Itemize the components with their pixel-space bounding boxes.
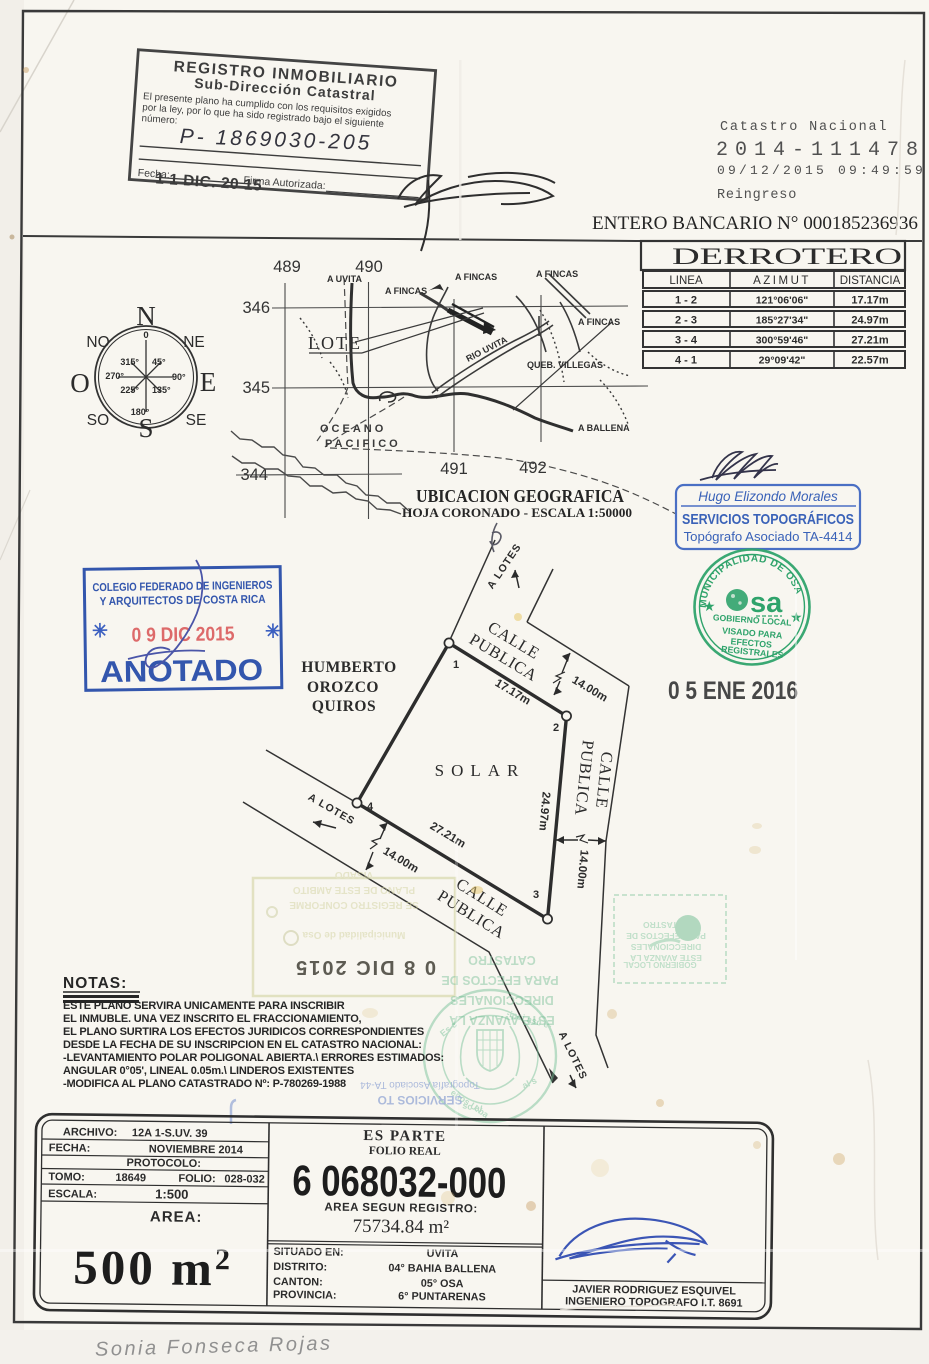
svg-text:489: 489: [273, 258, 301, 276]
svg-text:SE: SE: [186, 412, 207, 429]
svg-text:✳: ✳: [92, 621, 108, 642]
svg-text:1:500: 1:500: [155, 1186, 188, 1201]
svg-text:DISTANCIA: DISTANCIA: [840, 275, 901, 287]
svg-text:ESCALA:: ESCALA:: [48, 1188, 97, 1201]
svg-text:PROTOCOLO:: PROTOCOLO:: [127, 1157, 202, 1170]
svg-text:AREA SEGUN REGISTRO:: AREA SEGUN REGISTRO:: [324, 1201, 477, 1215]
svg-text:OCEANO: OCEANO: [320, 423, 386, 435]
svg-text:18649: 18649: [115, 1172, 146, 1184]
svg-text:SERVICIOS TO: SERVICIOS TO: [378, 1093, 463, 1107]
svg-text:028-032: 028-032: [224, 1173, 265, 1185]
svg-text:Reingreso: Reingreso: [717, 188, 797, 203]
svg-text:A FINCAS: A FINCAS: [385, 286, 427, 296]
svg-text:O: O: [70, 368, 90, 398]
svg-text:ENTERO BANCARIO N° 00018523693: ENTERO BANCARIO N° 000185236936: [592, 214, 918, 234]
svg-text:EL PLANO SURTIRA LOS EFECTOS J: EL PLANO SURTIRA LOS EFECTOS JURIDICOS C…: [63, 1026, 424, 1038]
svg-text:LINEA: LINEA: [669, 275, 703, 287]
svg-text:SERVICIOS TOPOGRÁFICOS: SERVICIOS TOPOGRÁFICOS: [682, 511, 854, 528]
svg-text:DISTRITO:: DISTRITO:: [273, 1261, 327, 1274]
svg-text:05° OSA: 05° OSA: [421, 1278, 464, 1291]
svg-text:OROZCO: OROZCO: [307, 679, 379, 696]
svg-text:ESTE PLANO SERVIRA UNICAMENTE: ESTE PLANO SERVIRA UNICAMENTE PARA INSCR…: [63, 1000, 345, 1012]
svg-text:A FINCAS: A FINCAS: [578, 317, 620, 327]
svg-text:0 8 DIC 2015: 0 8 DIC 2015: [294, 956, 436, 978]
svg-text:0 5 ENE 2016: 0 5 ENE 2016: [668, 677, 798, 705]
svg-text:4: 4: [367, 801, 374, 813]
svg-text:NO: NO: [86, 334, 109, 351]
svg-text:FOLIO:: FOLIO:: [178, 1173, 215, 1185]
svg-text:75734.84 m²: 75734.84 m²: [352, 1216, 449, 1238]
svg-text:AZIMUT: AZIMUT: [753, 275, 811, 287]
svg-text:HUMBERTO: HUMBERTO: [301, 659, 396, 676]
svg-text:PARA EFECTOS DE: PARA EFECTOS DE: [441, 973, 558, 987]
svg-text:ANGULAR 0°05', LINEAL 0.05m.\: ANGULAR 0°05', LINEAL 0.05m.\ LINDEROS E…: [63, 1065, 354, 1077]
svg-text:-LEVANTAMIENTO POLAR POLIGONAL: -LEVANTAMIENTO POLAR POLIGONAL ABIERTA.\…: [63, 1052, 444, 1064]
svg-text:1 - 2: 1 - 2: [675, 295, 697, 307]
svg-text:3: 3: [533, 889, 539, 901]
svg-text:17.17m: 17.17m: [851, 295, 889, 307]
svg-text:QUEB. VILLEGAS: QUEB. VILLEGAS: [527, 360, 603, 370]
svg-text:NE: NE: [183, 334, 205, 351]
svg-text:6° PUNTARENAS: 6° PUNTARENAS: [398, 1290, 486, 1303]
svg-text:E: E: [200, 367, 217, 397]
svg-text:24.97m: 24.97m: [851, 315, 889, 327]
svg-text:EL INMUBLE. UNA VEZ INSCRITO E: EL INMUBLE. UNA VEZ INSCRITO EL FRACCION…: [63, 1013, 362, 1025]
svg-text:A BALLENA: A BALLENA: [578, 423, 630, 433]
svg-text:Municipalidad de Osa: Municipalidad de Osa: [302, 929, 405, 940]
svg-text:SO: SO: [87, 412, 109, 429]
svg-text:491: 491: [440, 460, 468, 478]
svg-text:SOLAR: SOLAR: [435, 761, 526, 780]
svg-text:346: 346: [242, 299, 270, 317]
svg-text:Topógrafo Asociado TA-4414: Topógrafo Asociado TA-4414: [684, 529, 853, 544]
svg-text:N: N: [136, 301, 156, 331]
svg-text:FOLIO REAL: FOLIO REAL: [369, 1145, 441, 1158]
svg-text:A FINCAS: A FINCAS: [536, 269, 578, 279]
svg-text:Topografía Asociado TA-44: Topografía Asociado TA-44: [360, 1079, 480, 1090]
svg-text:NOVIEMBRE 2014: NOVIEMBRE 2014: [149, 1143, 244, 1156]
svg-text:315°: 315°: [120, 357, 139, 367]
svg-text:Hugo Elizondo Morales: Hugo Elizondo Morales: [698, 489, 838, 504]
svg-text:6 068032-000: 6 068032-000: [292, 1157, 507, 1208]
svg-text:135°: 135°: [152, 385, 171, 395]
svg-text:492: 492: [519, 459, 547, 477]
svg-text:PROVINCIA:: PROVINCIA:: [273, 1289, 337, 1302]
svg-text:4 - 1: 4 - 1: [675, 355, 697, 367]
svg-text:-MODIFICA AL PLANO CATASTRADO: -MODIFICA AL PLANO CATASTRADO Nº: P-7802…: [63, 1078, 346, 1090]
svg-text:CATASTRO: CATASTRO: [468, 953, 536, 967]
svg-text:27.21m: 27.21m: [851, 335, 889, 347]
svg-text:AREA:: AREA:: [150, 1208, 203, 1226]
svg-text:45°: 45°: [152, 357, 166, 367]
svg-text:DERROTERO: DERROTERO: [672, 244, 902, 269]
svg-text:345: 345: [242, 379, 270, 397]
svg-text:DESDE LA FECHA DE SU INSCRIPCI: DESDE LA FECHA DE SU INSCRIPCION EN EL C…: [63, 1039, 422, 1051]
svg-text:29°09'42": 29°09'42": [759, 355, 806, 367]
svg-text:GOBIERNO LOCAL: GOBIERNO LOCAL: [623, 960, 696, 969]
svg-text:2 - 3: 2 - 3: [675, 315, 697, 327]
svg-text:S: S: [138, 413, 153, 443]
svg-text:500 m2: 500 m2: [73, 1239, 233, 1296]
svg-text:CANTON:: CANTON:: [273, 1276, 323, 1289]
svg-text:270°: 270°: [105, 371, 124, 381]
svg-text:1: 1: [453, 659, 459, 671]
svg-text:Catastro Nacional: Catastro Nacional: [720, 120, 888, 135]
svg-text:90°: 90°: [172, 372, 186, 382]
svg-text:A FINCAS: A FINCAS: [455, 272, 497, 282]
svg-text:NOTAS:: NOTAS:: [63, 975, 127, 992]
svg-text:300°59'46": 300°59'46": [756, 335, 809, 347]
svg-text:225°: 225°: [120, 385, 139, 395]
svg-text:ANOTADO: ANOTADO: [100, 654, 263, 689]
svg-text:22.57m: 22.57m: [851, 355, 889, 367]
svg-text:0 9 DIC 2015: 0 9 DIC 2015: [131, 623, 234, 646]
svg-text:VISADO: VISADO: [335, 869, 374, 880]
svg-text:121°06'06": 121°06'06": [756, 295, 809, 307]
svg-text:UBICACION GEOGRAFICA: UBICACION GEOGRAFICA: [416, 486, 624, 506]
svg-text:LOTE: LOTE: [308, 333, 362, 353]
svg-text:3 - 4: 3 - 4: [675, 335, 698, 347]
svg-text:HOJA CORONADO - ESCALA 1:50000: HOJA CORONADO - ESCALA 1:50000: [402, 505, 632, 520]
svg-text:185°27'34": 185°27'34": [756, 315, 809, 327]
svg-text:FECHA:: FECHA:: [49, 1142, 91, 1155]
svg-text:SE REGISTRO CONFORME: SE REGISTRO CONFORME: [289, 899, 419, 910]
svg-text:sa: sa: [750, 587, 783, 619]
svg-text:Y ARQUITECTOS DE COSTA RICA: Y ARQUITECTOS DE COSTA RICA: [100, 594, 266, 608]
svg-text:ES PARTE: ES PARTE: [363, 1128, 446, 1145]
svg-text:12A 1-S.UV. 39: 12A 1-S.UV. 39: [132, 1127, 208, 1140]
svg-text:PACIFICO: PACIFICO: [325, 438, 401, 450]
svg-text:SITUADO EN:: SITUADO EN:: [273, 1246, 343, 1259]
svg-text:2014-111478: 2014-111478: [716, 139, 925, 162]
svg-text:COLEGIO FEDERADO DE INGENIEROS: COLEGIO FEDERADO DE INGENIEROS: [92, 580, 272, 595]
svg-text:QUIROS: QUIROS: [312, 698, 376, 715]
svg-text:ARCHIVO:: ARCHIVO:: [63, 1126, 118, 1139]
svg-text:04° BAHIA BALLENA: 04° BAHIA BALLENA: [388, 1262, 496, 1275]
svg-text:PLANO DE ESTE AMBITO: PLANO DE ESTE AMBITO: [293, 884, 415, 895]
svg-text:✳: ✳: [265, 622, 281, 643]
svg-text:A UVITA: A UVITA: [327, 274, 362, 284]
svg-text:2: 2: [553, 722, 559, 734]
svg-text:09/12/2015 09:49:59: 09/12/2015 09:49:59: [717, 163, 926, 178]
svg-text:DIRECCIONALES: DIRECCIONALES: [630, 942, 701, 952]
svg-text:0: 0: [143, 330, 148, 341]
svg-text:TOMO:: TOMO:: [48, 1171, 85, 1183]
